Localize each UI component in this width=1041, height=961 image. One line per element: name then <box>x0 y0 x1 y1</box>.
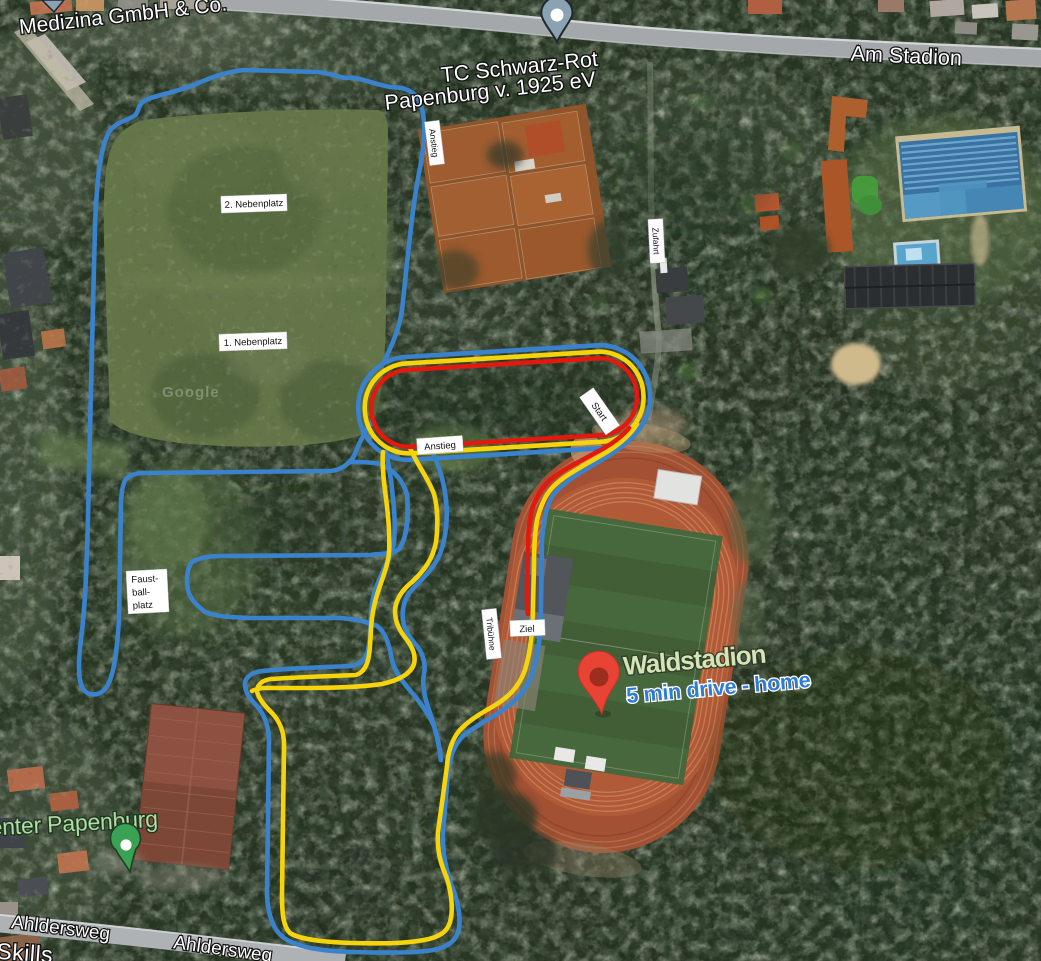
svg-text:Am Stadion: Am Stadion <box>850 42 962 71</box>
svg-text:Ziel: Ziel <box>519 624 535 636</box>
svg-text:Google: Google <box>162 384 220 401</box>
svg-text:Zufahrt: Zufahrt <box>650 227 661 255</box>
svg-text:ball-: ball- <box>132 587 151 599</box>
svg-text:2. Nebenplatz: 2. Nebenplatz <box>225 198 284 211</box>
svg-text:Faust-: Faust- <box>131 573 158 585</box>
svg-text:platz: platz <box>132 600 153 612</box>
svg-text:1. Nebenplatz: 1. Nebenplatz <box>224 336 283 349</box>
svg-text:Anstieg: Anstieg <box>424 440 456 453</box>
svg-text:Skills: Skills <box>0 938 54 961</box>
